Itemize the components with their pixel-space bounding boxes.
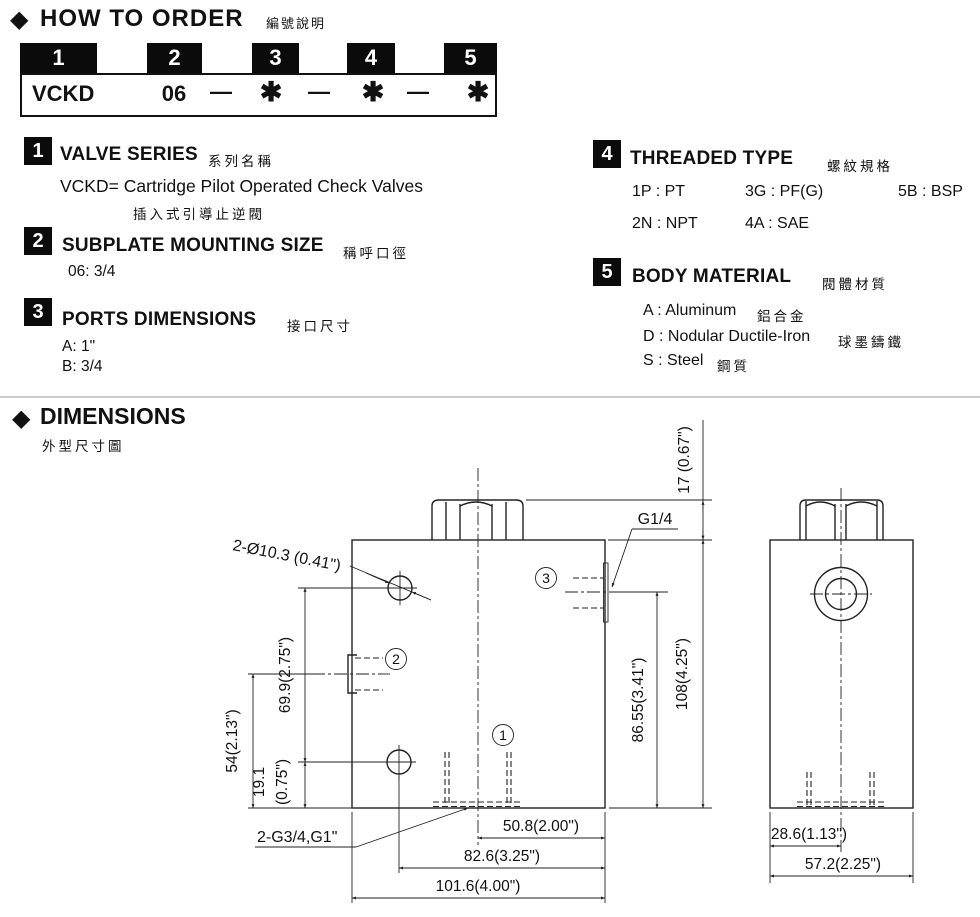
code-star: ✱ bbox=[362, 77, 385, 108]
code-position-2: 2 bbox=[147, 43, 202, 73]
g14-label: G1/4 bbox=[638, 511, 673, 528]
section-2-title-zh: 稱呼口徑 bbox=[343, 242, 409, 262]
dim-19-1-label: 19.1 bbox=[251, 767, 268, 797]
bottom-ports-label: 2-G3/4,G1" bbox=[257, 829, 337, 846]
how-to-order-title-zh: 編號說明 bbox=[266, 13, 326, 32]
section-4-badge: 4 bbox=[593, 140, 621, 168]
dim-28-6-label: 28.6(1.13") bbox=[771, 826, 847, 843]
mount-hole-upper bbox=[383, 571, 417, 605]
dim-86-55-label: 86.55(3.41") bbox=[630, 658, 647, 743]
port-3-label: 3 bbox=[542, 570, 550, 586]
side-port-bore bbox=[810, 568, 872, 621]
dim-108: 108(4.25") bbox=[674, 540, 703, 808]
code-star: ✱ bbox=[260, 77, 283, 108]
dimension-drawing: 2 3 1 G1/4 2-Ø10.3 bbox=[0, 397, 980, 917]
material-steel: S : Steel bbox=[643, 352, 703, 370]
code-gap bbox=[395, 43, 444, 73]
section-3-number: 3 bbox=[32, 301, 43, 324]
code-star: ✱ bbox=[467, 77, 490, 108]
code-gap bbox=[97, 43, 147, 73]
dim-101-6-label: 101.6(4.00") bbox=[436, 878, 521, 895]
hex-cap-front bbox=[432, 500, 523, 540]
code-dash: — bbox=[210, 79, 232, 105]
material-aluminum-zh: 鋁合金 bbox=[757, 305, 807, 325]
g14-callout: G1/4 bbox=[612, 511, 678, 587]
dim-17-label: 17 (0.67") bbox=[676, 426, 693, 494]
port-2: 2 bbox=[312, 649, 407, 694]
code-position-5-label: 5 bbox=[464, 45, 476, 71]
catalog-page: { "header": { "diamond": "◆", "title": "… bbox=[0, 0, 980, 917]
section-3-badge: 3 bbox=[24, 298, 52, 326]
section-1-badge: 1 bbox=[24, 137, 52, 165]
dim-28-6: 28.6(1.13") bbox=[770, 826, 847, 846]
dim-57-2: 57.2(2.25") bbox=[770, 856, 913, 876]
section-3-title: PORTS DIMENSIONS bbox=[62, 309, 256, 331]
section-5-title-zh: 閥體材質 bbox=[822, 273, 888, 293]
thread-option-4a: 4A : SAE bbox=[745, 215, 809, 233]
dim-19-1: 19.1 (0.75") bbox=[251, 759, 305, 808]
material-aluminum: A : Aluminum bbox=[643, 302, 736, 320]
valve-series-description: VCKD= Cartridge Pilot Operated Check Val… bbox=[60, 176, 423, 197]
dim-101-6: 101.6(4.00") bbox=[352, 878, 605, 898]
code-position-3-label: 3 bbox=[269, 45, 281, 71]
order-code-values-row: VCKD 06 — ✱ — ✱ — ✱ bbox=[20, 73, 497, 117]
valve-series-description-zh: 插入式引導止逆閥 bbox=[133, 203, 265, 223]
port-b-size: B: 3/4 bbox=[62, 358, 103, 376]
port-2-label: 2 bbox=[392, 651, 400, 667]
code-position-4-label: 4 bbox=[365, 45, 377, 71]
dim-54: 54(2.13") bbox=[224, 674, 253, 808]
order-code-table: 1 2 3 4 5 VCKD 06 — ✱ — ✱ — ✱ bbox=[20, 43, 497, 117]
hex-cap-side bbox=[800, 500, 883, 540]
section-5-badge: 5 bbox=[593, 258, 621, 286]
code-gap bbox=[299, 43, 347, 73]
dim-57-2-label: 57.2(2.25") bbox=[805, 856, 881, 873]
thread-option-1p: 1P : PT bbox=[632, 183, 685, 201]
bottom-ports-callout: 2-G3/4,G1" bbox=[255, 808, 468, 847]
material-ductile-iron-zh: 球墨鑄鐵 bbox=[838, 331, 904, 351]
mount-holes-label: 2-Ø10.3 (0.41") bbox=[231, 537, 342, 575]
port-1-label: 1 bbox=[499, 727, 507, 743]
port-1: 1 bbox=[433, 725, 522, 807]
dim-50-8-label: 50.8(2.00") bbox=[503, 818, 579, 835]
code-position-5: 5 bbox=[444, 43, 497, 73]
dim-54-label: 54(2.13") bbox=[224, 709, 241, 772]
section-5-title: BODY MATERIAL bbox=[632, 266, 791, 288]
code-dash: — bbox=[308, 79, 330, 105]
dim-69-9-label: 69.9(2.75") bbox=[277, 637, 294, 713]
dim-19-1-unit-label: (0.75") bbox=[274, 759, 291, 805]
model-code: VCKD bbox=[32, 81, 94, 107]
how-to-order-title: HOW TO ORDER bbox=[40, 5, 244, 33]
section-1-title-zh: 系列名稱 bbox=[208, 150, 274, 170]
section-5-number: 5 bbox=[601, 261, 612, 284]
section-4-title: THREADED TYPE bbox=[630, 148, 793, 170]
section-diamond-icon: ◆ bbox=[10, 5, 28, 34]
section-2-number: 2 bbox=[32, 230, 43, 253]
dim-69-9: 69.9(2.75") bbox=[277, 588, 305, 762]
code-position-2-label: 2 bbox=[168, 45, 180, 71]
section-1-title: VALVE SERIES bbox=[60, 144, 198, 166]
material-steel-zh: 鋼質 bbox=[717, 355, 750, 375]
side-view: 28.6(1.13") 57.2(2.25") bbox=[770, 488, 913, 883]
section-3-title-zh: 接口尺寸 bbox=[287, 315, 353, 335]
section-4-title-zh: 螺紋規格 bbox=[827, 155, 893, 175]
dim-17: 17 (0.67") bbox=[676, 420, 703, 540]
section-2-title: SUBPLATE MOUNTING SIZE bbox=[62, 235, 324, 257]
mount-hole-lower bbox=[382, 745, 416, 779]
thread-option-5b: 5B : BSP bbox=[898, 183, 963, 201]
section-1-number: 1 bbox=[32, 140, 43, 163]
code-position-1-label: 1 bbox=[52, 45, 64, 71]
material-ductile-iron: D : Nodular Ductile-Iron bbox=[643, 328, 810, 346]
mount-holes-callout: 2-Ø10.3 (0.41") bbox=[231, 537, 431, 600]
code-position-3: 3 bbox=[252, 43, 299, 73]
dim-82-6: 82.6(3.25") bbox=[399, 848, 605, 868]
dim-82-6-label: 82.6(3.25") bbox=[464, 848, 540, 865]
port-a-size: A: 1" bbox=[62, 338, 95, 356]
section-2-badge: 2 bbox=[24, 227, 52, 255]
code-dash: — bbox=[407, 79, 429, 105]
order-code-positions-row: 1 2 3 4 5 bbox=[20, 43, 497, 73]
front-view: 2 3 1 G1/4 2-Ø10.3 bbox=[224, 420, 712, 903]
dim-50-8: 50.8(2.00") bbox=[478, 818, 605, 838]
dim-86-55: 86.55(3.41") bbox=[630, 592, 657, 808]
size-code: 06 bbox=[162, 81, 186, 107]
side-bottom-port bbox=[797, 772, 886, 807]
section-4-number: 4 bbox=[601, 143, 612, 166]
thread-option-2n: 2N : NPT bbox=[632, 215, 698, 233]
mounting-size-value: 06: 3/4 bbox=[68, 263, 115, 281]
code-position-4: 4 bbox=[347, 43, 395, 73]
thread-option-3g: 3G : PF(G) bbox=[745, 183, 823, 201]
code-position-1: 1 bbox=[20, 43, 97, 73]
port-3: 3 bbox=[536, 563, 613, 622]
dim-108-label: 108(4.25") bbox=[674, 638, 691, 710]
code-gap bbox=[202, 43, 252, 73]
valve-body-side bbox=[770, 540, 913, 808]
